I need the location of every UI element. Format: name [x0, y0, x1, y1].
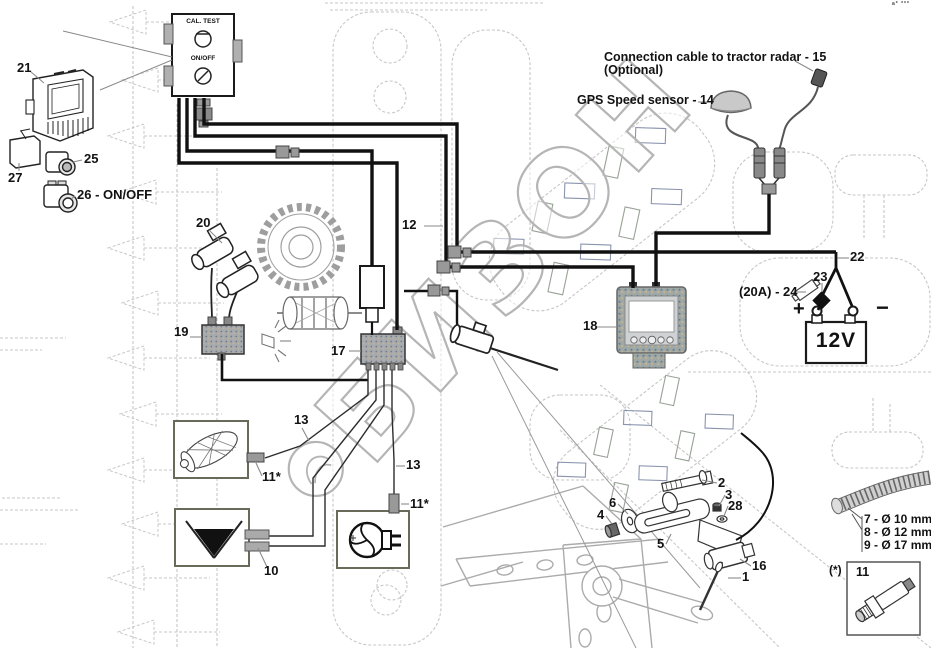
radar-cable-connector: [811, 68, 828, 87]
fan-sensor-connector-11: [389, 494, 399, 513]
push-button-25: [46, 152, 75, 175]
cal-test-label: CAL. TEST: [180, 19, 226, 26]
hose-size-7: 7 - Ø 10 mm: [864, 513, 931, 526]
callout-23: 23: [813, 270, 827, 284]
roller-sensor-connector-11: [247, 453, 264, 462]
callout-20: 20: [196, 216, 210, 230]
sensor-cable-loop: [736, 433, 773, 540]
hopper-level-box-10: [175, 509, 269, 566]
callout-6: 6: [609, 496, 616, 510]
callout-27: 27: [8, 171, 22, 185]
display-monitor-18: [617, 282, 686, 368]
hose-size-bracket: [848, 508, 862, 552]
callout-16: 16: [752, 559, 766, 573]
callout-22: 22: [850, 250, 864, 264]
wiring-diagram-page: { "watermark": { "text": "БИЗОН" }, "cor…: [0, 0, 931, 650]
junction-box-17: [361, 327, 405, 370]
callout-17: 17: [331, 344, 345, 358]
callout-13-left: 13: [294, 413, 308, 427]
callout-5: 5: [657, 537, 664, 551]
agitator-roller: [277, 297, 362, 329]
diagram-canvas: БИЗОН: [0, 0, 931, 650]
gps-antenna-dome: [711, 91, 751, 113]
callout-21: 21: [17, 61, 31, 75]
monitor-unit-21: [26, 70, 93, 141]
callout-28: 28: [728, 499, 742, 513]
fuse-rating-label: (20A) - 24: [739, 285, 798, 299]
braided-hose: [830, 471, 931, 515]
on-off-label: ON/OFF: [180, 56, 226, 63]
spiked-roller-box: [174, 421, 264, 478]
callout-19: 19: [174, 325, 188, 339]
washer-28: [717, 516, 727, 522]
callout-4: 4: [597, 508, 604, 522]
bushing-4: [604, 523, 620, 538]
battery-voltage-label: 12V: [806, 330, 866, 352]
callout-13-right: 13: [406, 458, 420, 472]
battery-minus-terminal: [849, 307, 858, 316]
gps-sensor-label: GPS Speed sensor - 14: [577, 94, 714, 107]
callout-26-on-off: 26 - ON/OFF: [77, 188, 152, 202]
relay-27: [10, 129, 40, 168]
callout-10: 10: [264, 564, 278, 578]
callout-11-fan: 11*: [410, 497, 429, 511]
on-off-switch-26: [44, 181, 77, 212]
radar-cable: [779, 87, 818, 149]
gps-radar-plug-pair: [754, 148, 785, 194]
spare-sensor-note: (*): [829, 564, 842, 577]
on-off-knob: [195, 68, 211, 84]
fan-box: [337, 494, 409, 568]
battery-minus-label: −: [876, 296, 889, 319]
callout-18: 18: [583, 319, 597, 333]
corner-mark: a* ***: [892, 2, 910, 7]
radar-cable-note: (Optional): [604, 64, 663, 77]
hose-size-8: 8 - Ø 12 mm: [864, 526, 931, 539]
battery-plus-label: +: [793, 299, 805, 320]
callout-1: 1: [742, 570, 749, 584]
gps-cable: [726, 115, 758, 148]
callout-11-roller: 11*: [262, 470, 281, 484]
hose-size-9: 9 - Ø 17 mm: [864, 539, 931, 552]
toothed-wheel: [261, 207, 341, 287]
junction-box-19: [202, 317, 244, 360]
callout-25: 25: [84, 152, 98, 166]
callout-12: 12: [402, 218, 416, 232]
spare-sensor-number: 11: [856, 566, 869, 579]
cal-test-knob: [195, 31, 211, 47]
shaft-sensor-pair-20: [182, 223, 261, 300]
